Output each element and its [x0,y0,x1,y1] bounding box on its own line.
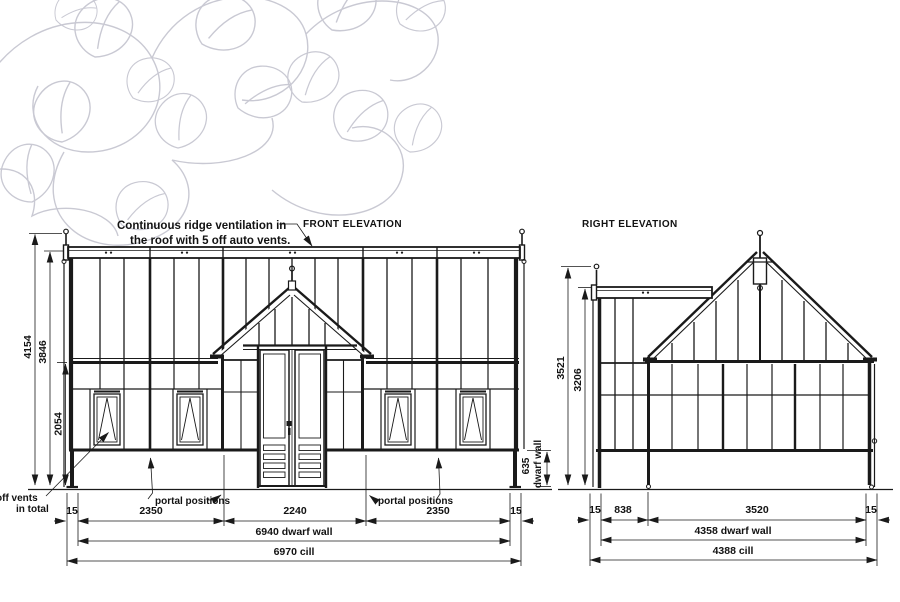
label-off-vents-line2: in total [16,504,49,515]
dim-right-main-depth: 3520 [745,504,769,516]
side-vent-2 [177,392,203,446]
ridge-vent-note-line2: the roof with 5 off auto vents. [130,235,290,247]
right-elevation-title: RIGHT ELEVATION [582,219,678,230]
front-elevation-drawing [28,229,552,489]
ridge-vent-note-line1: Continuous ridge ventilation in [117,220,286,232]
portal-left-leader-a [148,458,153,499]
dim-dwarf-height-label: dwarf wall [533,440,544,489]
greenhouse-technical-drawing: Continuous ridge ventilation in the roof… [0,0,900,602]
leaf-decoration [0,0,451,245]
dim-right-total-height: 3521 [555,356,567,380]
drawing-svg: Continuous ridge ventilation in the roof… [0,0,900,602]
dim-right-cill: 4388 cill [713,545,754,557]
dim-right-right-offset: 15 [865,504,877,516]
finial-porch-side [594,264,599,285]
ridge-vent-dots [105,252,480,254]
dim-front-eaves-height: 2054 [53,412,65,436]
side-vent-3 [385,392,411,446]
front-elevation-title: FRONT ELEVATION [303,219,402,230]
label-portal-right: portal positions [378,496,453,507]
dim-front-cill: 6970 cill [274,546,315,558]
finial-front-right [520,229,525,245]
dim-front-right-offset: 15 [510,505,522,517]
dim-right-dwarf-wall: 4358 dwarf wall [694,525,771,537]
dim-right-porch-depth: 838 [614,504,632,516]
label-off-vents-line1: off vents [0,493,38,504]
portal-right-leader-a [370,496,376,501]
dim-front-dwarf-wall: 6940 dwarf wall [255,526,332,538]
portal-right-leader-b [436,458,440,500]
right-elevation-drawing [558,231,893,490]
right-dimensions [561,267,890,567]
dim-right-ridge-height: 3206 [572,368,584,392]
side-vent-1 [94,392,120,446]
finial-gable [747,231,773,291]
dim-dwarf-height-value: 635 [521,457,532,474]
side-vent-4 [460,392,486,446]
dim-front-total-height: 4154 [22,335,34,359]
label-portal-left: portal positions [155,496,230,507]
dim-right-left-offset: 15 [589,504,601,516]
dim-front-ridge-height: 3846 [37,340,49,364]
dim-front-left-offset: 15 [66,505,78,517]
dim-front-center: 2240 [283,505,307,517]
end-wall-glazing-bars [672,364,843,450]
finial-front-left [64,229,69,245]
front-porch [210,266,374,488]
